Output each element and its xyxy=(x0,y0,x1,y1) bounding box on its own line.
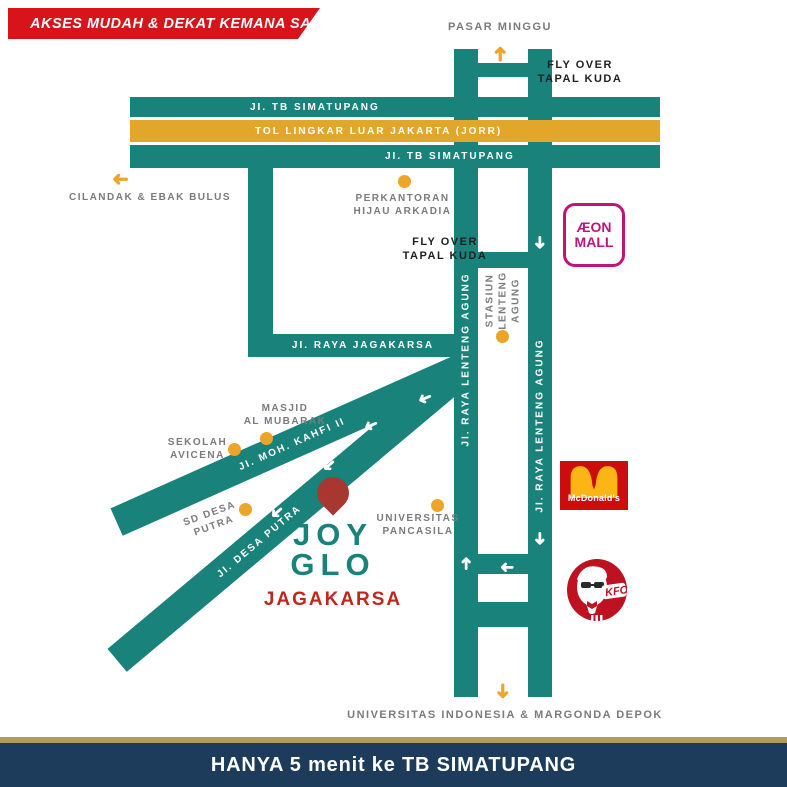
banner: AKSES MUDAH & DEKAT KEMANA SAJA xyxy=(8,8,320,39)
arrow-left-cilandak-icon: ➜ xyxy=(112,169,129,189)
road-jagakarsa-label: JI. RAYA JAGAKARSA xyxy=(292,340,434,351)
arrow-down-depok-icon: ➜ xyxy=(492,683,512,700)
arrow-down-right-leg-lower-icon: ➜ xyxy=(532,531,549,545)
poi-stasiun-label: STASIUN LENTENG AGUNG xyxy=(484,266,523,336)
road-jorr-toll: TOL LINGKAR LUAR JAKARTA (JORR) xyxy=(130,120,660,142)
road-jagakarsa: JI. RAYA JAGAKARSA xyxy=(248,334,478,357)
road-tb-simatupang-top: JI. TB SIMATUPANG xyxy=(130,97,660,117)
aeon-mall-logo: ÆON MALL xyxy=(563,203,625,267)
destination-pasar-minggu: PASAR MINGGU xyxy=(425,21,575,35)
property-name-line2: GLO xyxy=(263,550,403,580)
banner-text: AKSES MUDAH & DEKAT KEMANA SAJA xyxy=(8,16,331,32)
property-area: JAGAKARSA xyxy=(263,589,403,611)
arrow-up-left-leg-icon: ➜ xyxy=(458,556,475,570)
footer-text: HANYA 5 menit ke TB SIMATUPANG xyxy=(211,754,576,777)
destination-cilandak: CILANDAK & EBAK BULUS xyxy=(45,192,255,205)
footer-bar: HANYA 5 menit ke TB SIMATUPANG xyxy=(0,743,787,787)
arrow-up-pasar-minggu-icon: ➜ xyxy=(490,46,510,63)
road-tb-simatupang-bottom: JI. TB SIMATUPANG xyxy=(130,145,660,168)
poi-sekolah-label: SEKOLAH AVICENA xyxy=(140,437,255,462)
poi-masjid-label: MASJID AL MUBARAK xyxy=(220,403,350,428)
property-name-line1: JOY xyxy=(263,520,403,550)
poi-perkantoran-dot xyxy=(398,175,411,188)
aeon-logo-line2: MALL xyxy=(575,235,614,250)
location-map: AKSES MUDAH & DEKAT KEMANA SAJA JI. RAYA… xyxy=(0,0,787,787)
road-lenteng-left-label: JI. RAYA LENTENG AGUNG xyxy=(461,260,472,460)
mcdonalds-logo: McDonald's xyxy=(560,461,628,510)
road-tb-simatupang-bottom-label: JI. TB SIMATUPANG xyxy=(385,151,515,162)
poi-masjid-dot xyxy=(260,432,273,445)
poi-perkantoran-label: PERKANTORAN HIJAU ARKADIA xyxy=(330,193,475,218)
property-name: JOY GLO xyxy=(263,520,403,580)
road-loop-vertical xyxy=(248,160,273,357)
kfc-logo: KFC xyxy=(565,557,629,623)
road-jorr-toll-label: TOL LINGKAR LUAR JAKARTA (JORR) xyxy=(255,126,502,137)
arrow-left-connector-icon: ➜ xyxy=(500,559,514,576)
aeon-logo-line1: ÆON xyxy=(577,220,612,235)
arrow-down-right-leg-upper-icon: ➜ xyxy=(532,235,549,249)
flyover-tapal-kuda-top-label: FLY OVER TAPAL KUDA xyxy=(520,59,640,87)
road-connector-lower xyxy=(476,602,530,627)
poi-univ-pancasila-dot xyxy=(431,499,444,512)
road-lenteng-right-label: JI. RAYA LENTENG AGUNG xyxy=(535,326,546,526)
mcdonalds-wordmark: McDonald's xyxy=(560,493,628,503)
destination-ui-depok: UNIVERSITAS INDONESIA & MARGONDA DEPOK xyxy=(330,709,680,723)
flyover-tapal-kuda-mid-label: FLY OVER TAPAL KUDA xyxy=(385,236,505,264)
road-tb-simatupang-top-label: JI. TB SIMATUPANG xyxy=(250,102,380,113)
